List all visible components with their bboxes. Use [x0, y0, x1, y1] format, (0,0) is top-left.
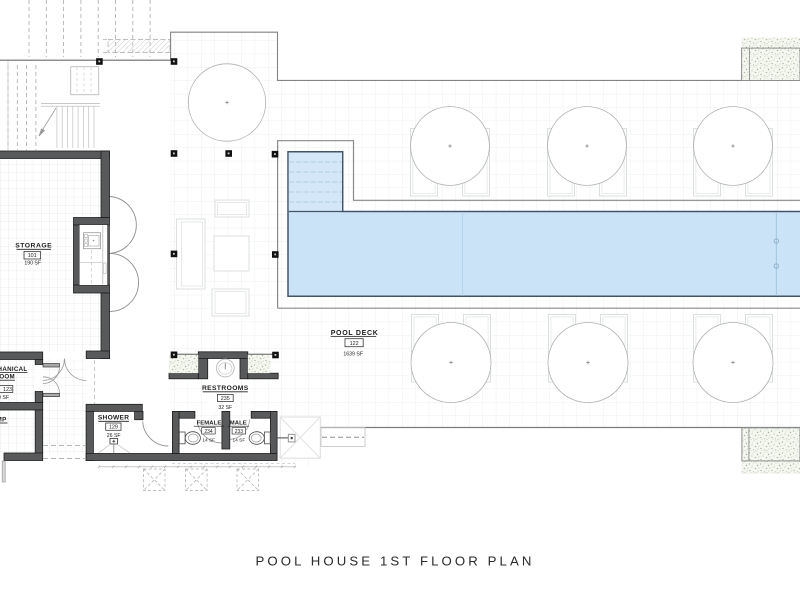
svg-text:123: 123 [3, 387, 12, 393]
svg-text:RESTROOMS: RESTROOMS [202, 385, 249, 392]
svg-text:POOL HOUSE 1ST FLOOR PLAN: POOL HOUSE 1ST FLOOR PLAN [255, 554, 534, 569]
svg-text:129: 129 [109, 425, 118, 431]
svg-text:PUMP: PUMP [0, 416, 7, 423]
svg-text:SHOWER: SHOWER [98, 415, 129, 422]
svg-text:101: 101 [28, 253, 37, 259]
svg-text:POOL DECK: POOL DECK [331, 330, 379, 337]
svg-text:14 SF: 14 SF [202, 438, 215, 444]
svg-text:14 SF: 14 SF [232, 438, 245, 444]
svg-text:MALE: MALE [230, 421, 247, 427]
svg-text:STORAGE: STORAGE [15, 243, 52, 250]
svg-text:ROOM: ROOM [0, 374, 15, 381]
svg-text:9 SF: 9 SF [0, 395, 9, 401]
svg-text:190 SF: 190 SF [24, 260, 41, 266]
svg-text:233: 233 [235, 429, 244, 435]
svg-text:1639 SF: 1639 SF [343, 351, 363, 357]
svg-text:FEMALE: FEMALE [197, 421, 222, 427]
svg-text:MECHANICAL: MECHANICAL [0, 366, 28, 373]
svg-text:122: 122 [350, 341, 359, 347]
svg-text:26 SF: 26 SF [107, 433, 121, 439]
svg-text:32 SF: 32 SF [218, 405, 232, 411]
svg-text:235: 235 [221, 396, 230, 402]
svg-text:234: 234 [204, 429, 213, 435]
